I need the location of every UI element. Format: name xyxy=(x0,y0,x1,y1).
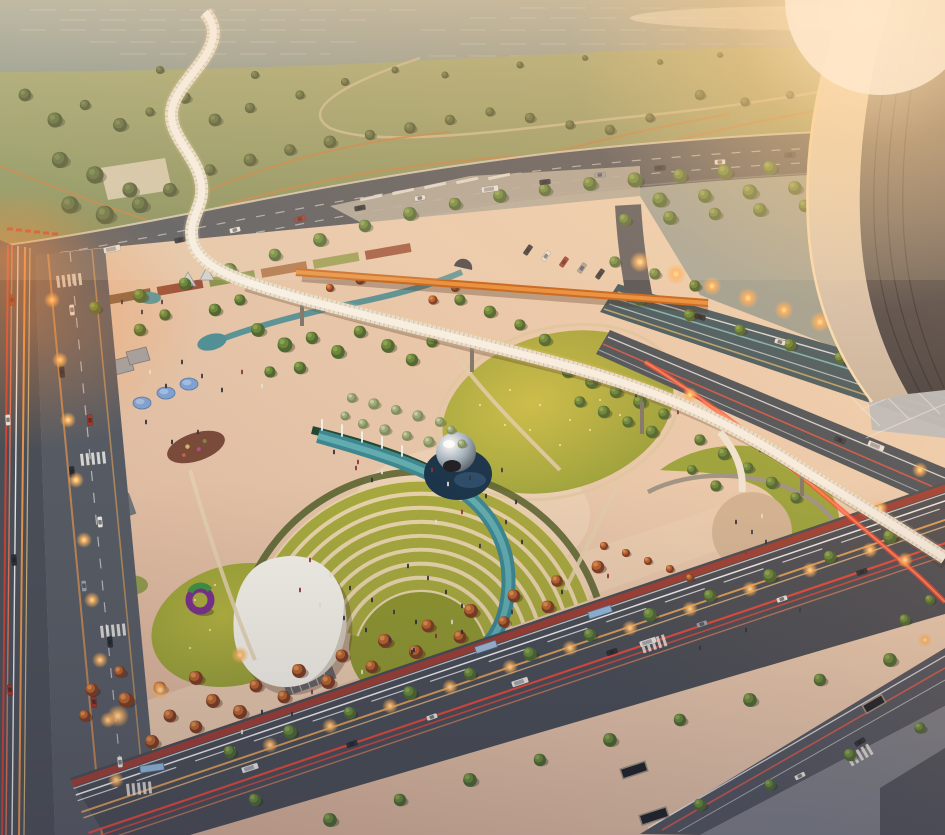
rendering-canvas xyxy=(0,0,945,835)
warm-dusk-tint xyxy=(0,0,945,835)
atmosphere xyxy=(0,0,945,835)
park-aerial-rendering xyxy=(0,0,945,835)
